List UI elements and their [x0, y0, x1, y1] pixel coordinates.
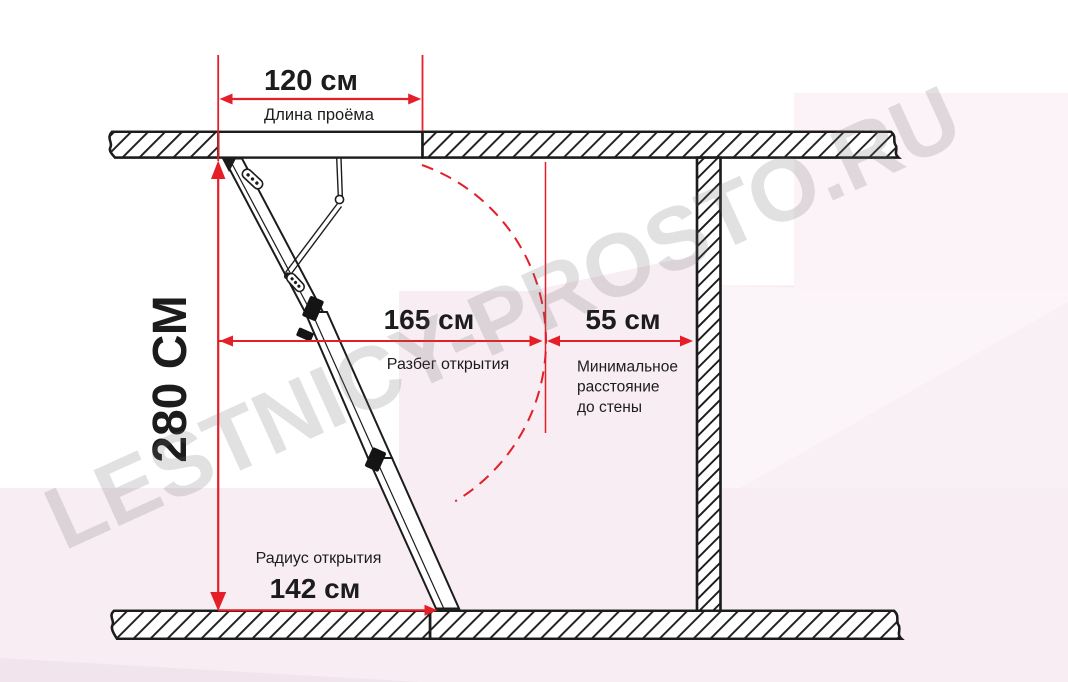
- svg-text:расстояние: расстояние: [577, 379, 660, 396]
- svg-text:Радиус открытия: Радиус открытия: [256, 550, 382, 567]
- svg-text:до стены: до стены: [577, 399, 642, 416]
- svg-text:Длина проёма: Длина проёма: [264, 106, 375, 124]
- svg-text:Минимальное: Минимальное: [577, 359, 678, 376]
- svg-text:120 см: 120 см: [264, 65, 358, 97]
- svg-text:142 см: 142 см: [270, 573, 361, 604]
